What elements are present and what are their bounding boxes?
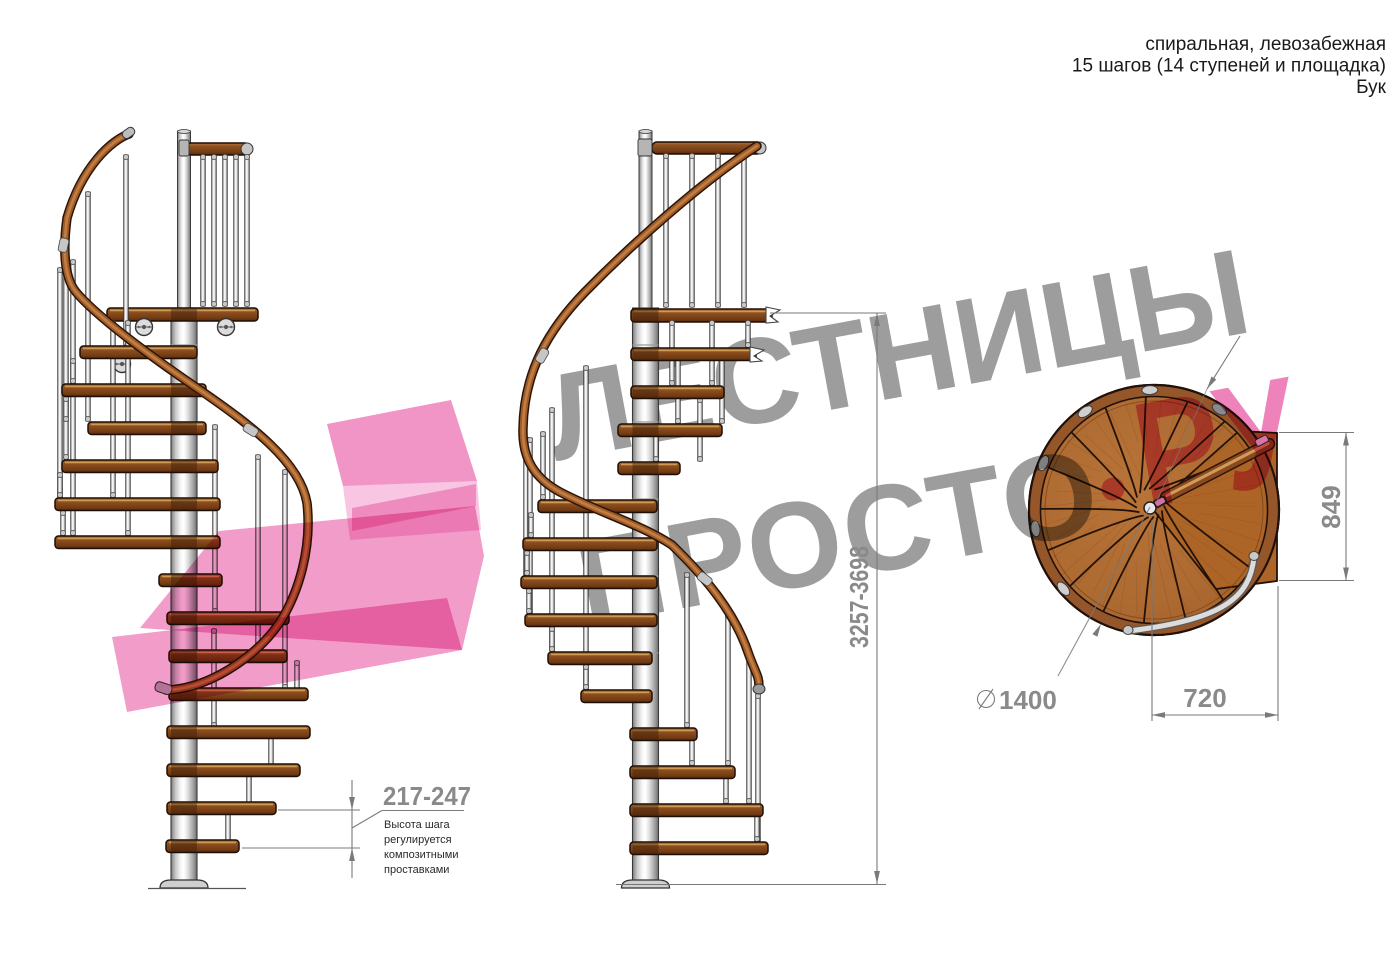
svg-text:720: 720 — [1183, 683, 1226, 713]
svg-text:РУ: РУ — [1121, 344, 1313, 539]
svg-text:217-247: 217-247 — [383, 781, 471, 811]
svg-text:1400: 1400 — [999, 685, 1057, 715]
svg-text:849: 849 — [1316, 485, 1346, 528]
svg-text:3257-3698: 3257-3698 — [844, 546, 874, 648]
